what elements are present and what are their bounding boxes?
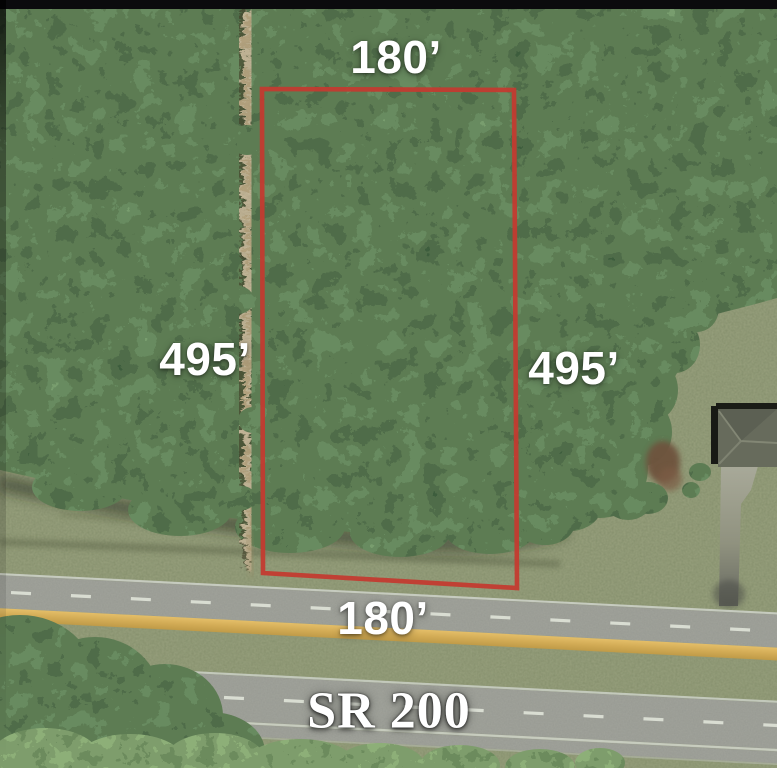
house-roof-top-shadow	[716, 403, 777, 410]
aerial-parcel-map: 180’ 495’ 495’ 180’ SR 200	[0, 0, 777, 768]
house	[711, 403, 777, 467]
satellite-imagery	[0, 0, 777, 768]
dirt-trail	[241, 6, 249, 566]
house-left-wall-shadow	[711, 406, 719, 464]
driveway-shadow	[713, 580, 745, 608]
left-edge-shade	[0, 0, 6, 768]
letterbox-top-bar	[0, 0, 777, 9]
